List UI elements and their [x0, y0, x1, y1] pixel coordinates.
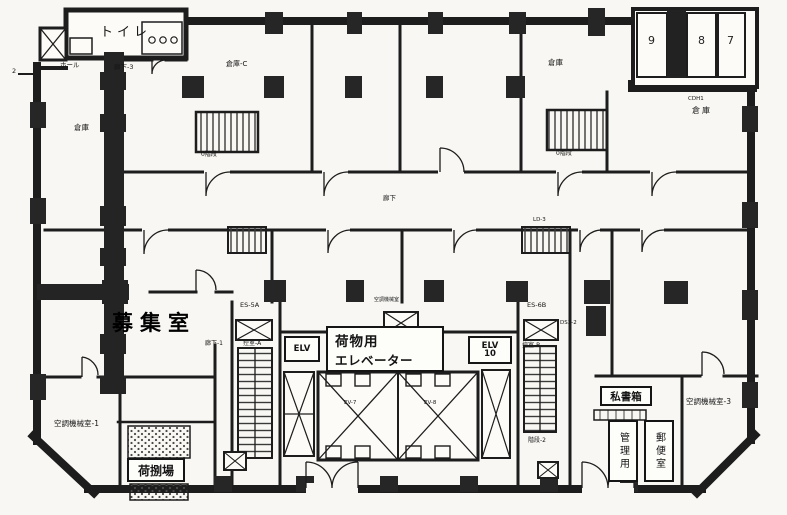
elevator-left-label: ELV — [294, 345, 311, 354]
stairs-b2-label: 階段-2 — [528, 438, 546, 444]
room-label-anteroom-a: 控室-A — [243, 341, 261, 347]
room-label-storage-mid: 倉庫 — [548, 59, 563, 67]
storage-units-block — [633, 9, 757, 87]
elevator-shafts — [284, 370, 510, 460]
code-label-es5a: ES-5A — [240, 302, 259, 309]
unit-9-number: 9 — [648, 34, 655, 47]
po-box-box: 私書箱 — [600, 386, 652, 406]
shaft-ev7-label: EV-7 — [344, 401, 356, 407]
stairs-4-label: LD-3 — [533, 218, 546, 224]
elevator-left-box: ELV — [284, 336, 320, 362]
admin-room-label: 管理用 — [616, 432, 631, 471]
unit-8-number: 8 — [698, 34, 705, 47]
thick-walls — [37, 52, 129, 394]
room-label-ac-3: 空調機械室-3 — [686, 398, 731, 406]
stairs-1 — [196, 112, 258, 152]
freight-elevator-box: 荷物用 エレベーター — [326, 326, 444, 372]
code-label-cdh1: CDH1 — [688, 97, 704, 103]
room-label-storage-west: 倉庫 — [74, 124, 89, 132]
stairs-4 — [522, 227, 570, 253]
mail-room-label: 郵便室 — [652, 432, 667, 471]
corridor-main-label: 廊下 — [383, 195, 396, 202]
recruit-room-annotation: 募集室 — [112, 312, 196, 334]
elevator-10-box: ELV 10 — [468, 336, 512, 364]
stairs-2-label: 0階段 — [556, 151, 572, 157]
mail-room-box: 郵便室 — [644, 420, 674, 482]
room-label-storage-c: 倉庫-C — [226, 61, 247, 68]
room-label-anteroom-b: 控室-B — [522, 343, 540, 349]
mail-counter — [594, 410, 646, 420]
room-label-hall: ホール — [60, 62, 80, 69]
admin-room-box: 管理用 — [608, 420, 638, 482]
room-label-storage-ne: 倉庫 — [692, 107, 712, 115]
room-label-corridor-1: 廊下-1 — [205, 341, 223, 347]
po-box-label: 私書箱 — [610, 389, 642, 404]
dim-tick-label: 2 — [12, 68, 16, 75]
freight-elevator-label-1: 荷物用 — [335, 330, 379, 350]
unit-7-number: 7 — [727, 34, 734, 47]
shaft-ev8-label: EV-8 — [424, 401, 436, 407]
room-label-corridor-3: 廊下-3 — [114, 64, 133, 71]
floor-plan: トイレ ホール 廊下-3 2 倉庫 倉庫-C 0階段 倉庫 0階段 CDH1 倉… — [0, 0, 787, 515]
stairs-2 — [547, 110, 607, 150]
room-label-ac-1: 空調機械室-1 — [54, 420, 99, 428]
elevator-10-number: 10 — [484, 350, 496, 359]
code-label-es6b: ES-6B — [527, 302, 546, 309]
freight-elevator-label-2: エレベーター — [335, 350, 413, 369]
loading-dock-box: 荷捌場 — [127, 458, 185, 482]
room-label-toilet: トイレ — [100, 26, 151, 40]
loading-dock-label: 荷捌場 — [138, 462, 174, 479]
stairs-1-label: 0階段 — [201, 152, 217, 158]
code-label-ds32: DS3-2 — [560, 321, 577, 327]
stairs-3 — [228, 227, 266, 253]
room-label-ac-small: 空調機械室 — [374, 298, 399, 303]
